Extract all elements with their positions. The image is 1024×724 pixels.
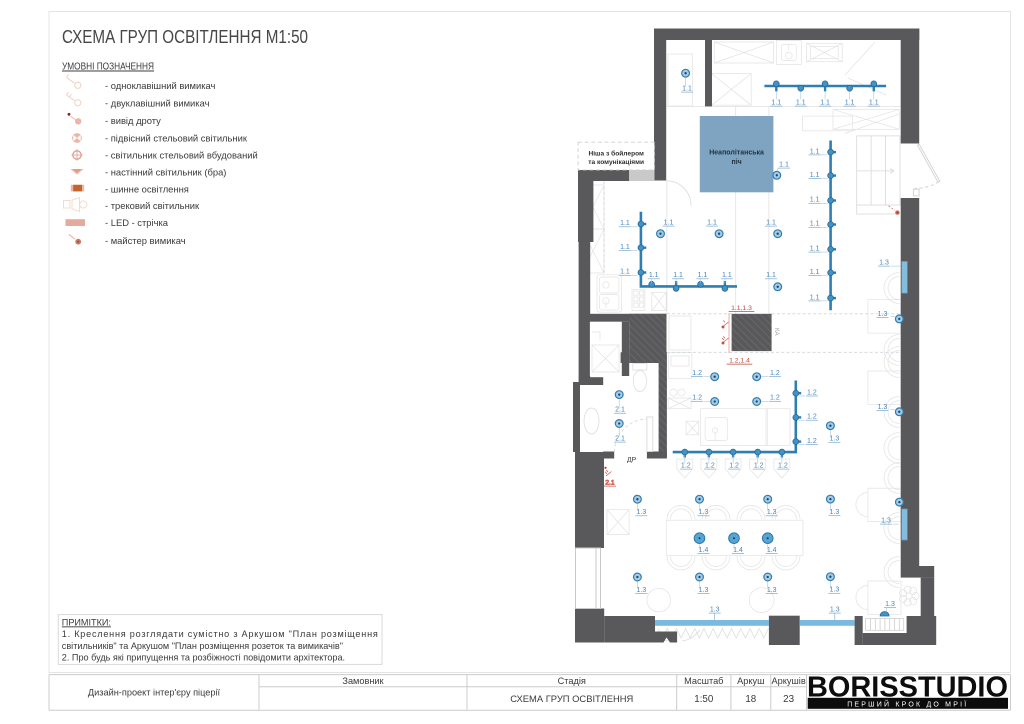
svg-text:1.3: 1.3 (830, 587, 840, 594)
svg-text:- настінний світильник (бра): - настінний світильник (бра) (105, 166, 226, 177)
svg-text:- шинне освітлення: - шинне освітлення (105, 183, 189, 194)
svg-text:1.1: 1.1 (766, 220, 776, 227)
svg-text:та комунікаціями: та комунікаціями (588, 158, 644, 166)
svg-text:1.2,1.4: 1.2,1.4 (729, 358, 750, 365)
svg-text:1.1: 1.1 (779, 162, 789, 169)
svg-text:1.3: 1.3 (885, 601, 895, 608)
svg-text:1.1: 1.1 (649, 272, 659, 279)
svg-text:1.2: 1.2 (807, 389, 817, 396)
svg-text:1.1: 1.1 (771, 100, 781, 107)
svg-text:- вивід дроту: - вивід дроту (105, 115, 161, 126)
svg-text:1.3: 1.3 (878, 404, 888, 411)
svg-text:1.3: 1.3 (767, 509, 777, 516)
svg-text:1.1: 1.1 (766, 272, 776, 279)
svg-text:1.4: 1.4 (699, 547, 709, 554)
svg-text:1.1: 1.1 (722, 272, 732, 279)
svg-text:1.1: 1.1 (682, 86, 692, 93)
svg-text:- підвісний стельовий світильн: - підвісний стельовий світильник (105, 132, 248, 143)
svg-text:1.2: 1.2 (770, 395, 780, 402)
svg-text:1.3: 1.3 (830, 509, 840, 516)
svg-text:1.1: 1.1 (869, 100, 879, 107)
svg-text:1.1: 1.1 (620, 269, 630, 276)
svg-text:18: 18 (745, 694, 756, 705)
svg-text:1.2: 1.2 (754, 463, 764, 470)
svg-text:1.1: 1.1 (810, 269, 820, 276)
svg-text:1.2: 1.2 (681, 463, 691, 470)
svg-text:1.2: 1.2 (778, 463, 788, 470)
svg-text:1.1: 1.1 (810, 148, 820, 155)
svg-text:23: 23 (783, 694, 794, 705)
svg-text:1.1: 1.1 (810, 294, 820, 301)
svg-text:1.1: 1.1 (620, 220, 630, 227)
svg-text:ПЕРШИЙ КРОК ДО МРІЇ: ПЕРШИЙ КРОК ДО МРІЇ (847, 699, 968, 708)
svg-text:2.1: 2.1 (615, 407, 625, 414)
svg-text:1.3: 1.3 (878, 311, 888, 318)
svg-text:- трековий світильник: - трековий світильник (105, 200, 200, 211)
svg-text:1.1: 1.1 (698, 272, 708, 279)
svg-text:Аркуш: Аркуш (737, 676, 764, 686)
svg-text:2.1: 2.1 (605, 480, 615, 487)
svg-text:1.1: 1.1 (810, 197, 820, 204)
svg-text:Аркушів: Аркушів (771, 676, 805, 686)
svg-text:1.3: 1.3 (699, 587, 709, 594)
svg-text:- LED - стрічка: - LED - стрічка (105, 217, 169, 228)
svg-text:піч: піч (731, 158, 741, 166)
svg-text:1.1: 1.1 (620, 244, 630, 251)
svg-text:1.2: 1.2 (807, 438, 817, 445)
svg-text:1.1: 1.1 (664, 220, 674, 227)
svg-text:Ніша з бойлером: Ніша з бойлером (588, 150, 644, 158)
svg-text:Дизайн-проект інтер'єру піцері: Дизайн-проект інтер'єру піцерії (88, 688, 221, 698)
svg-text:- одноклавішний вимикач: - одноклавішний вимикач (105, 80, 216, 91)
svg-text:1.1,1.3: 1.1,1.3 (731, 305, 752, 312)
svg-text:2. Про будь які припущення та: 2. Про будь які припущення та розбіжност… (62, 652, 345, 662)
svg-text:1.3: 1.3 (881, 518, 891, 525)
svg-text:1.1: 1.1 (673, 272, 683, 279)
svg-text:1.2: 1.2 (729, 463, 739, 470)
svg-text:1.4: 1.4 (733, 547, 743, 554)
svg-text:ПРИМІТКИ:: ПРИМІТКИ: (62, 617, 111, 627)
svg-text:- двуклавішний вимикач: - двуклавішний вимикач (105, 97, 210, 108)
svg-text:- світильник стельовий вбудова: - світильник стельовий вбудований (105, 149, 258, 160)
svg-text:1.1: 1.1 (810, 172, 820, 179)
svg-text:1.4: 1.4 (767, 547, 777, 554)
svg-text:1.2: 1.2 (692, 370, 702, 377)
svg-text:Неаполітанська: Неаполітанська (709, 149, 764, 157)
svg-text:2.1: 2.1 (615, 436, 625, 443)
svg-text:світильників" та Аркушом "План: світильників" та Аркушом "План розміщенн… (62, 641, 343, 651)
svg-text:1.3: 1.3 (699, 509, 709, 516)
svg-text:1.2: 1.2 (770, 370, 780, 377)
svg-text:Масштаб: Масштаб (684, 676, 723, 686)
svg-text:1.1: 1.1 (796, 100, 806, 107)
svg-text:1.3: 1.3 (710, 607, 720, 614)
svg-text:1.2: 1.2 (705, 463, 715, 470)
svg-text:1.1: 1.1 (845, 100, 855, 107)
svg-text:- майстер вимикач: - майстер вимикач (105, 235, 186, 246)
svg-text:СХЕМА ГРУП ОСВІТЛЕННЯ М1:50: СХЕМА ГРУП ОСВІТЛЕННЯ М1:50 (62, 26, 308, 47)
svg-text:Замовник: Замовник (342, 676, 384, 686)
svg-text:1.3: 1.3 (767, 587, 777, 594)
svg-text:1.2: 1.2 (807, 414, 817, 421)
svg-text:УМОВНІ ПОЗНАЧЕННЯ: УМОВНІ ПОЗНАЧЕННЯ (62, 62, 154, 73)
svg-text:1.3: 1.3 (879, 260, 889, 267)
svg-text:Стадія: Стадія (558, 676, 586, 686)
svg-text:1.3: 1.3 (830, 436, 840, 443)
svg-text:1.3: 1.3 (637, 587, 647, 594)
svg-text:1.2: 1.2 (692, 395, 702, 402)
svg-text:1. Креслення розглядати сум: 1. Креслення розглядати сумістно з Аркуш… (62, 629, 378, 639)
svg-text:1.1: 1.1 (707, 220, 717, 227)
svg-text:1.1: 1.1 (810, 246, 820, 253)
svg-text:1.3: 1.3 (830, 607, 840, 614)
svg-text:1.3: 1.3 (637, 509, 647, 516)
svg-text:1:50: 1:50 (694, 694, 714, 705)
svg-text:КА: КА (773, 328, 779, 336)
svg-text:1.1: 1.1 (820, 100, 830, 107)
svg-text:СХЕМА ГРУП ОСВІТЛЕННЯ: СХЕМА ГРУП ОСВІТЛЕННЯ (510, 693, 633, 704)
svg-text:ДР: ДР (627, 457, 637, 464)
svg-text:1.1: 1.1 (810, 221, 820, 228)
